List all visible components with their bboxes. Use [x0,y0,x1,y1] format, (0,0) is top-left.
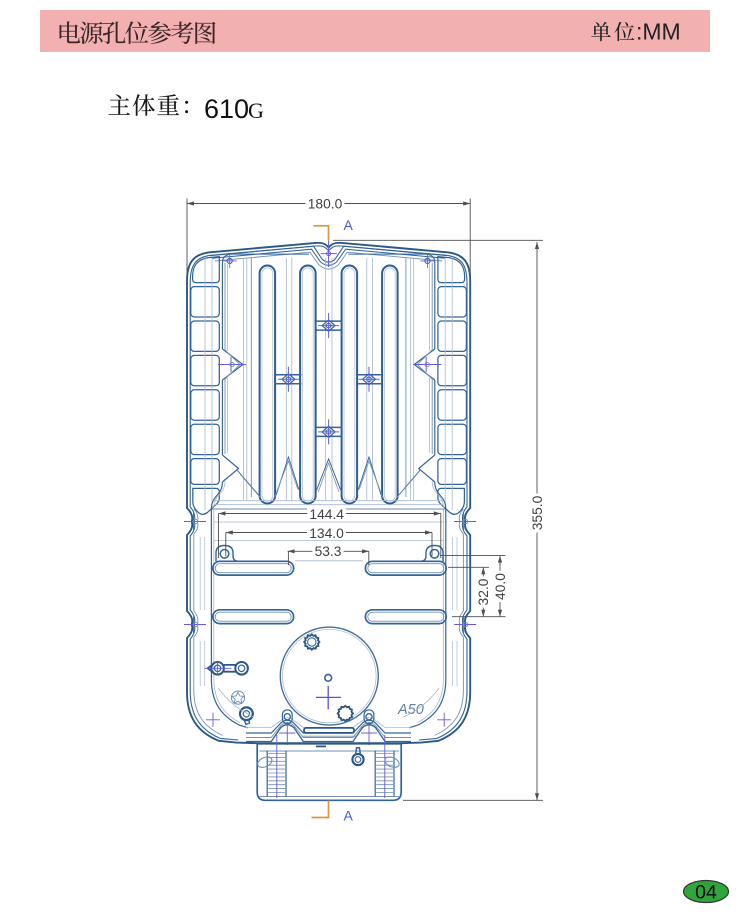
svg-text:180.0: 180.0 [308,196,343,211]
svg-text:40.0: 40.0 [493,573,508,600]
svg-text:A: A [344,217,354,233]
svg-text:04: 04 [695,882,717,904]
svg-text:53.3: 53.3 [315,544,342,559]
svg-text::MM: :MM [636,19,681,45]
svg-text:32.0: 32.0 [476,578,491,605]
svg-text:A: A [344,808,354,824]
svg-text:134.0: 134.0 [309,526,344,541]
svg-text:G: G [248,98,264,123]
svg-text:144.4: 144.4 [309,507,344,522]
svg-text:610: 610 [204,94,249,124]
svg-text:A50: A50 [397,702,424,718]
svg-text:355.0: 355.0 [530,495,545,530]
